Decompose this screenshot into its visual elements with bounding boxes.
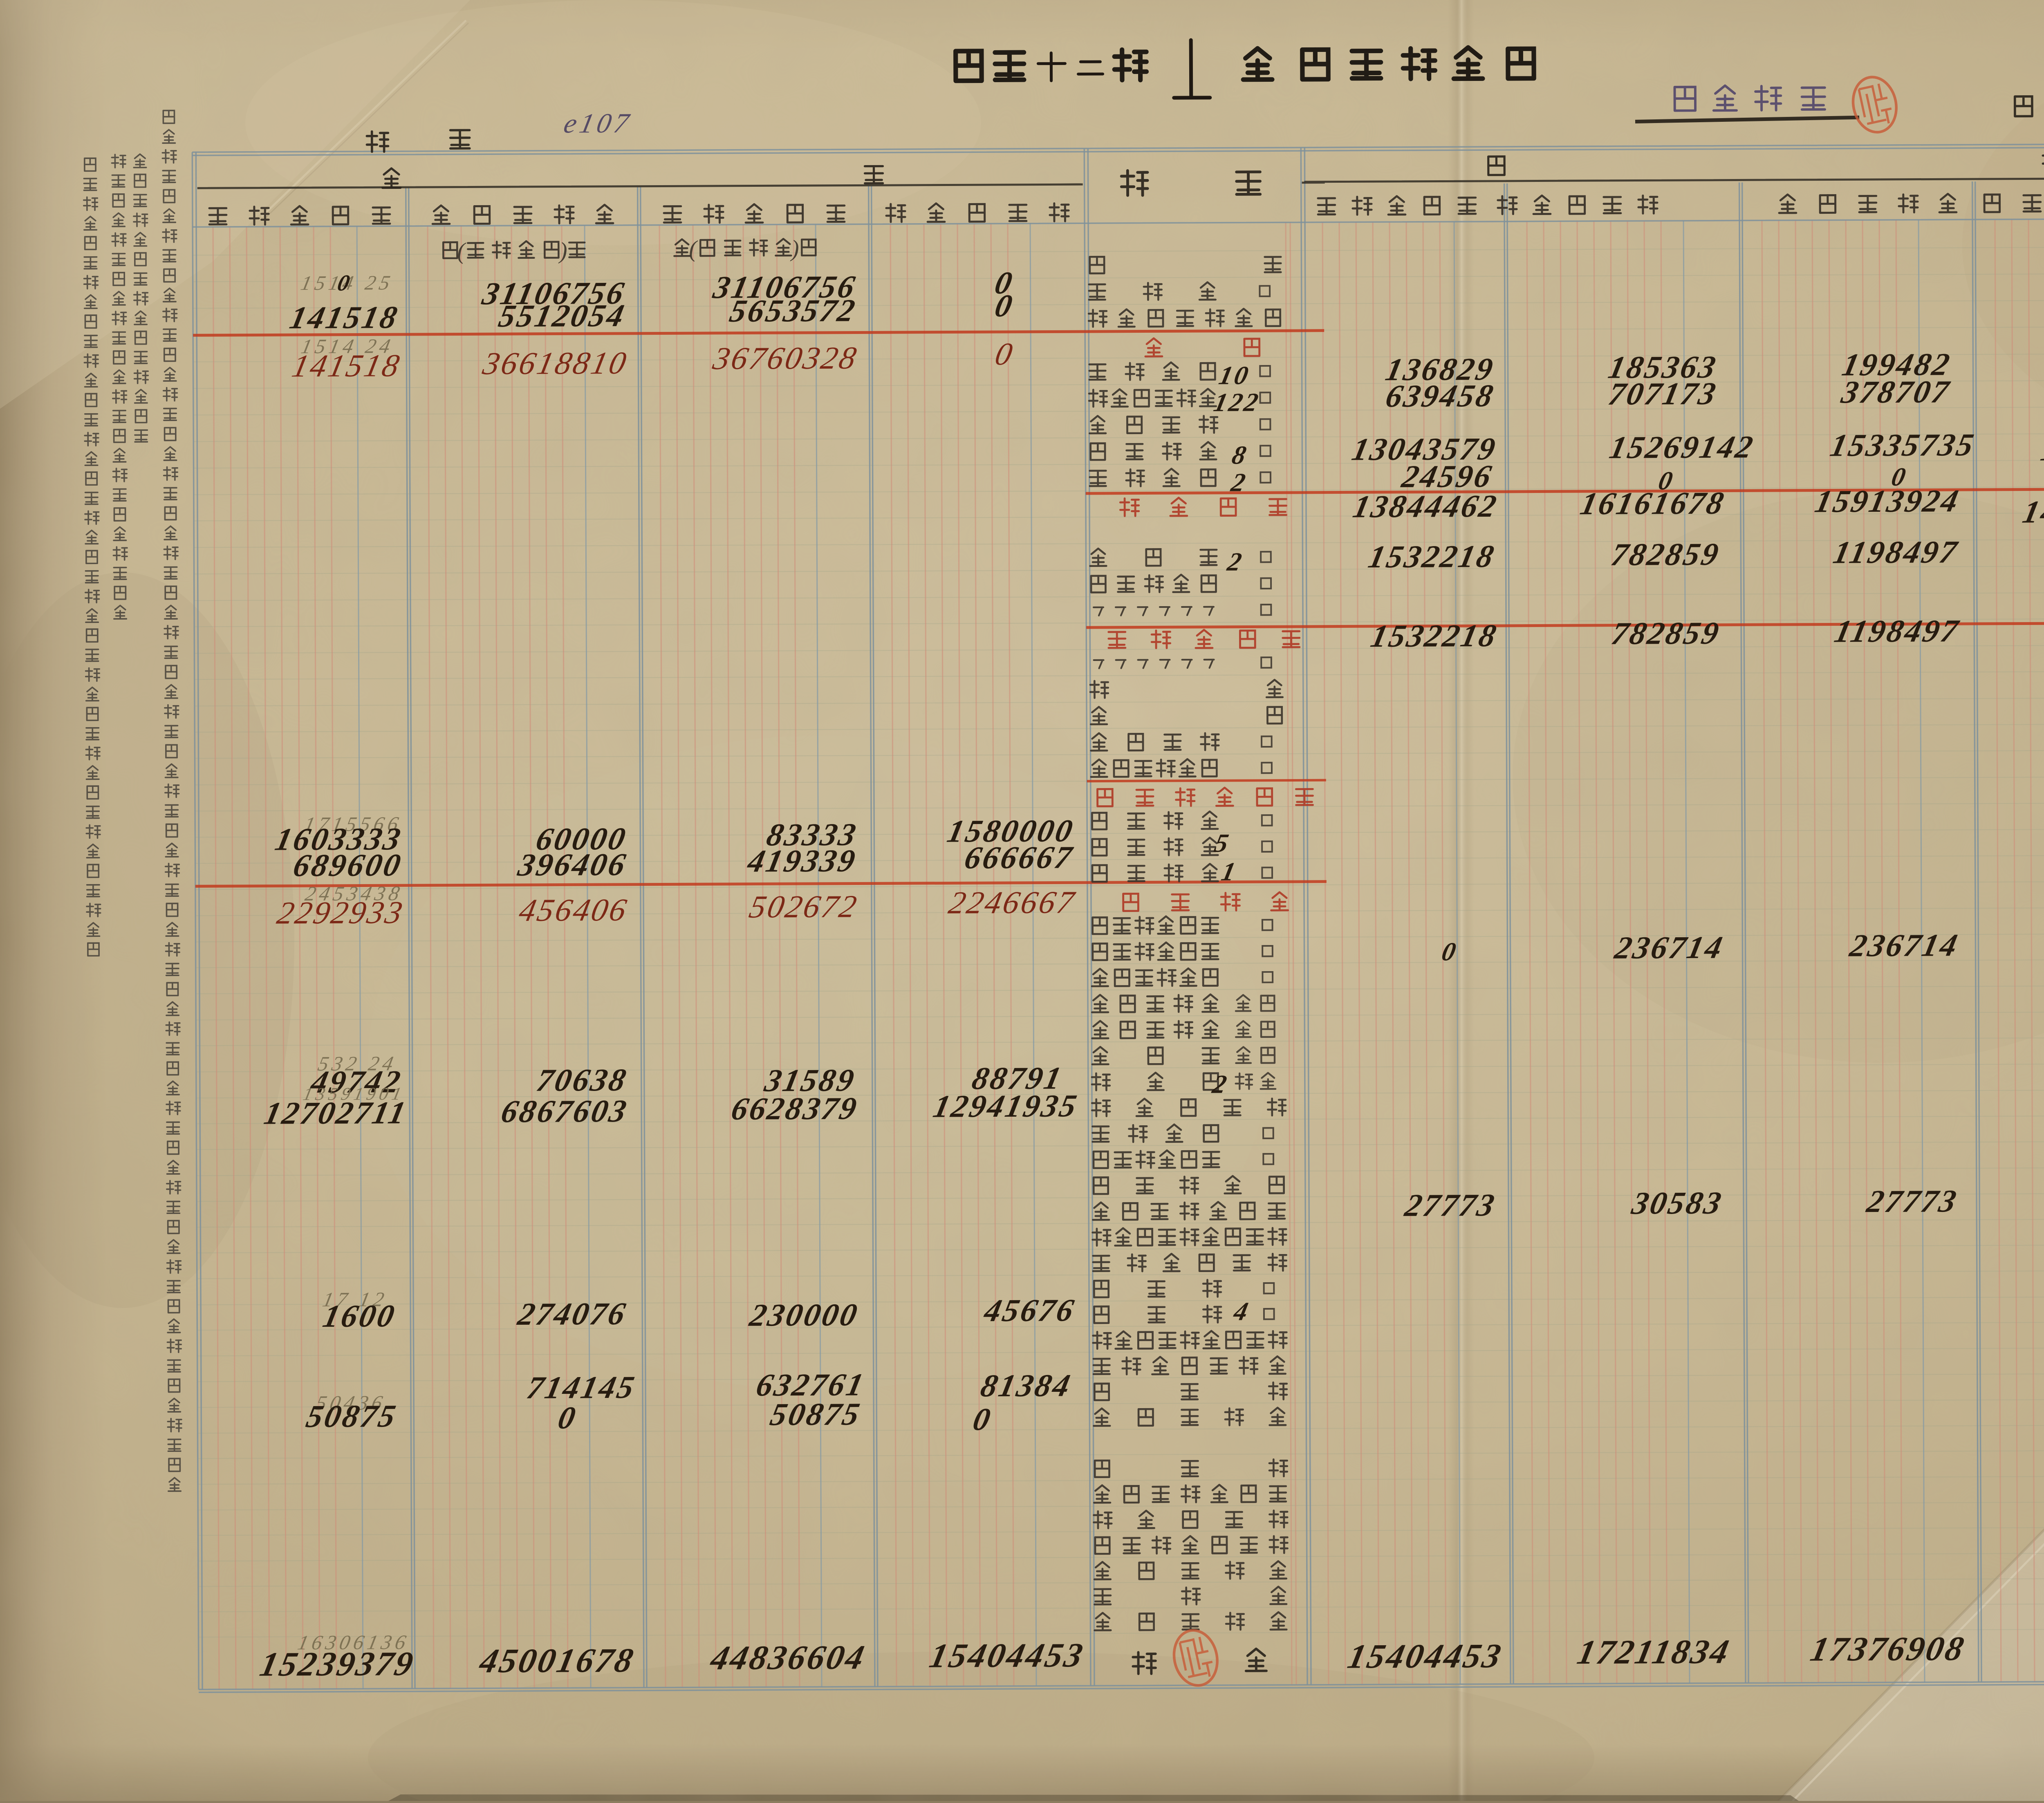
svg-text:12702711: 12702711 xyxy=(261,1095,411,1131)
svg-text:30583: 30583 xyxy=(1629,1185,1726,1221)
svg-text:15269142: 15269142 xyxy=(1607,430,1758,466)
svg-text:): ) xyxy=(790,235,799,262)
svg-text:70638: 70638 xyxy=(533,1063,631,1098)
svg-text:10: 10 xyxy=(1217,361,1253,390)
svg-text:15239379: 15239379 xyxy=(257,1645,418,1684)
svg-text:689600: 689600 xyxy=(290,848,406,883)
svg-text:13844462: 13844462 xyxy=(1350,489,1501,525)
svg-text:141518: 141518 xyxy=(289,348,404,384)
svg-text:12941935: 12941935 xyxy=(930,1089,1082,1124)
svg-text:396406: 396406 xyxy=(515,847,630,883)
svg-text:27773: 27773 xyxy=(1864,1184,1961,1219)
svg-text:16161678: 16161678 xyxy=(1577,486,1728,522)
svg-text:122: 122 xyxy=(1211,387,1263,417)
svg-text:15404453: 15404453 xyxy=(926,1636,1088,1675)
svg-text:17211834: 17211834 xyxy=(1574,1633,1734,1671)
svg-text:36618810: 36618810 xyxy=(480,346,631,382)
svg-text:1532218: 1532218 xyxy=(1365,539,1499,575)
svg-text:1532218: 1532218 xyxy=(1368,618,1501,654)
svg-text:502672: 502672 xyxy=(746,889,861,925)
svg-text:782859: 782859 xyxy=(1608,537,1724,572)
svg-text:419339: 419339 xyxy=(744,843,860,879)
svg-text:5653572: 5653572 xyxy=(726,293,860,329)
svg-text:230000: 230000 xyxy=(746,1297,862,1333)
svg-text:15335735: 15335735 xyxy=(1827,428,1979,464)
svg-text:44836604: 44836604 xyxy=(707,1638,869,1677)
svg-text:2246667: 2246667 xyxy=(946,885,1079,921)
svg-text:27773: 27773 xyxy=(1402,1188,1499,1223)
svg-text:50875: 50875 xyxy=(303,1399,401,1434)
svg-text:e107: e107 xyxy=(561,108,635,139)
svg-text:707173: 707173 xyxy=(1605,376,1721,412)
svg-text:45001678: 45001678 xyxy=(476,1642,638,1680)
svg-text:2292933: 2292933 xyxy=(274,895,408,931)
svg-text:378707: 378707 xyxy=(1838,374,1954,410)
svg-text:6867603: 6867603 xyxy=(498,1094,632,1129)
svg-text:782859: 782859 xyxy=(1609,616,1724,651)
svg-text:5512054: 5512054 xyxy=(495,298,629,334)
svg-text:81384: 81384 xyxy=(977,1368,1075,1404)
svg-text:1198497: 1198497 xyxy=(1830,535,1962,570)
svg-text:6628379: 6628379 xyxy=(728,1091,862,1127)
svg-text:666667: 666667 xyxy=(961,840,1077,876)
svg-text:15404453: 15404453 xyxy=(1345,1637,1506,1676)
svg-text:17376908: 17376908 xyxy=(1807,1630,1969,1669)
svg-text:639458: 639458 xyxy=(1383,379,1498,414)
svg-text:1198497: 1198497 xyxy=(1831,614,1963,649)
svg-text:15913924: 15913924 xyxy=(1812,484,1963,520)
svg-text:714145: 714145 xyxy=(524,1370,639,1405)
svg-text:): ) xyxy=(558,237,567,264)
svg-text:45676: 45676 xyxy=(981,1293,1079,1328)
svg-text:236714: 236714 xyxy=(1847,928,1962,963)
svg-text:36760328: 36760328 xyxy=(710,340,861,376)
svg-text:50875: 50875 xyxy=(767,1397,865,1432)
svg-text:141518: 141518 xyxy=(287,300,402,336)
svg-text:1600: 1600 xyxy=(320,1299,399,1334)
svg-text:236714: 236714 xyxy=(1611,930,1727,965)
svg-text:456406: 456406 xyxy=(516,893,632,928)
svg-text:274076: 274076 xyxy=(515,1297,630,1332)
